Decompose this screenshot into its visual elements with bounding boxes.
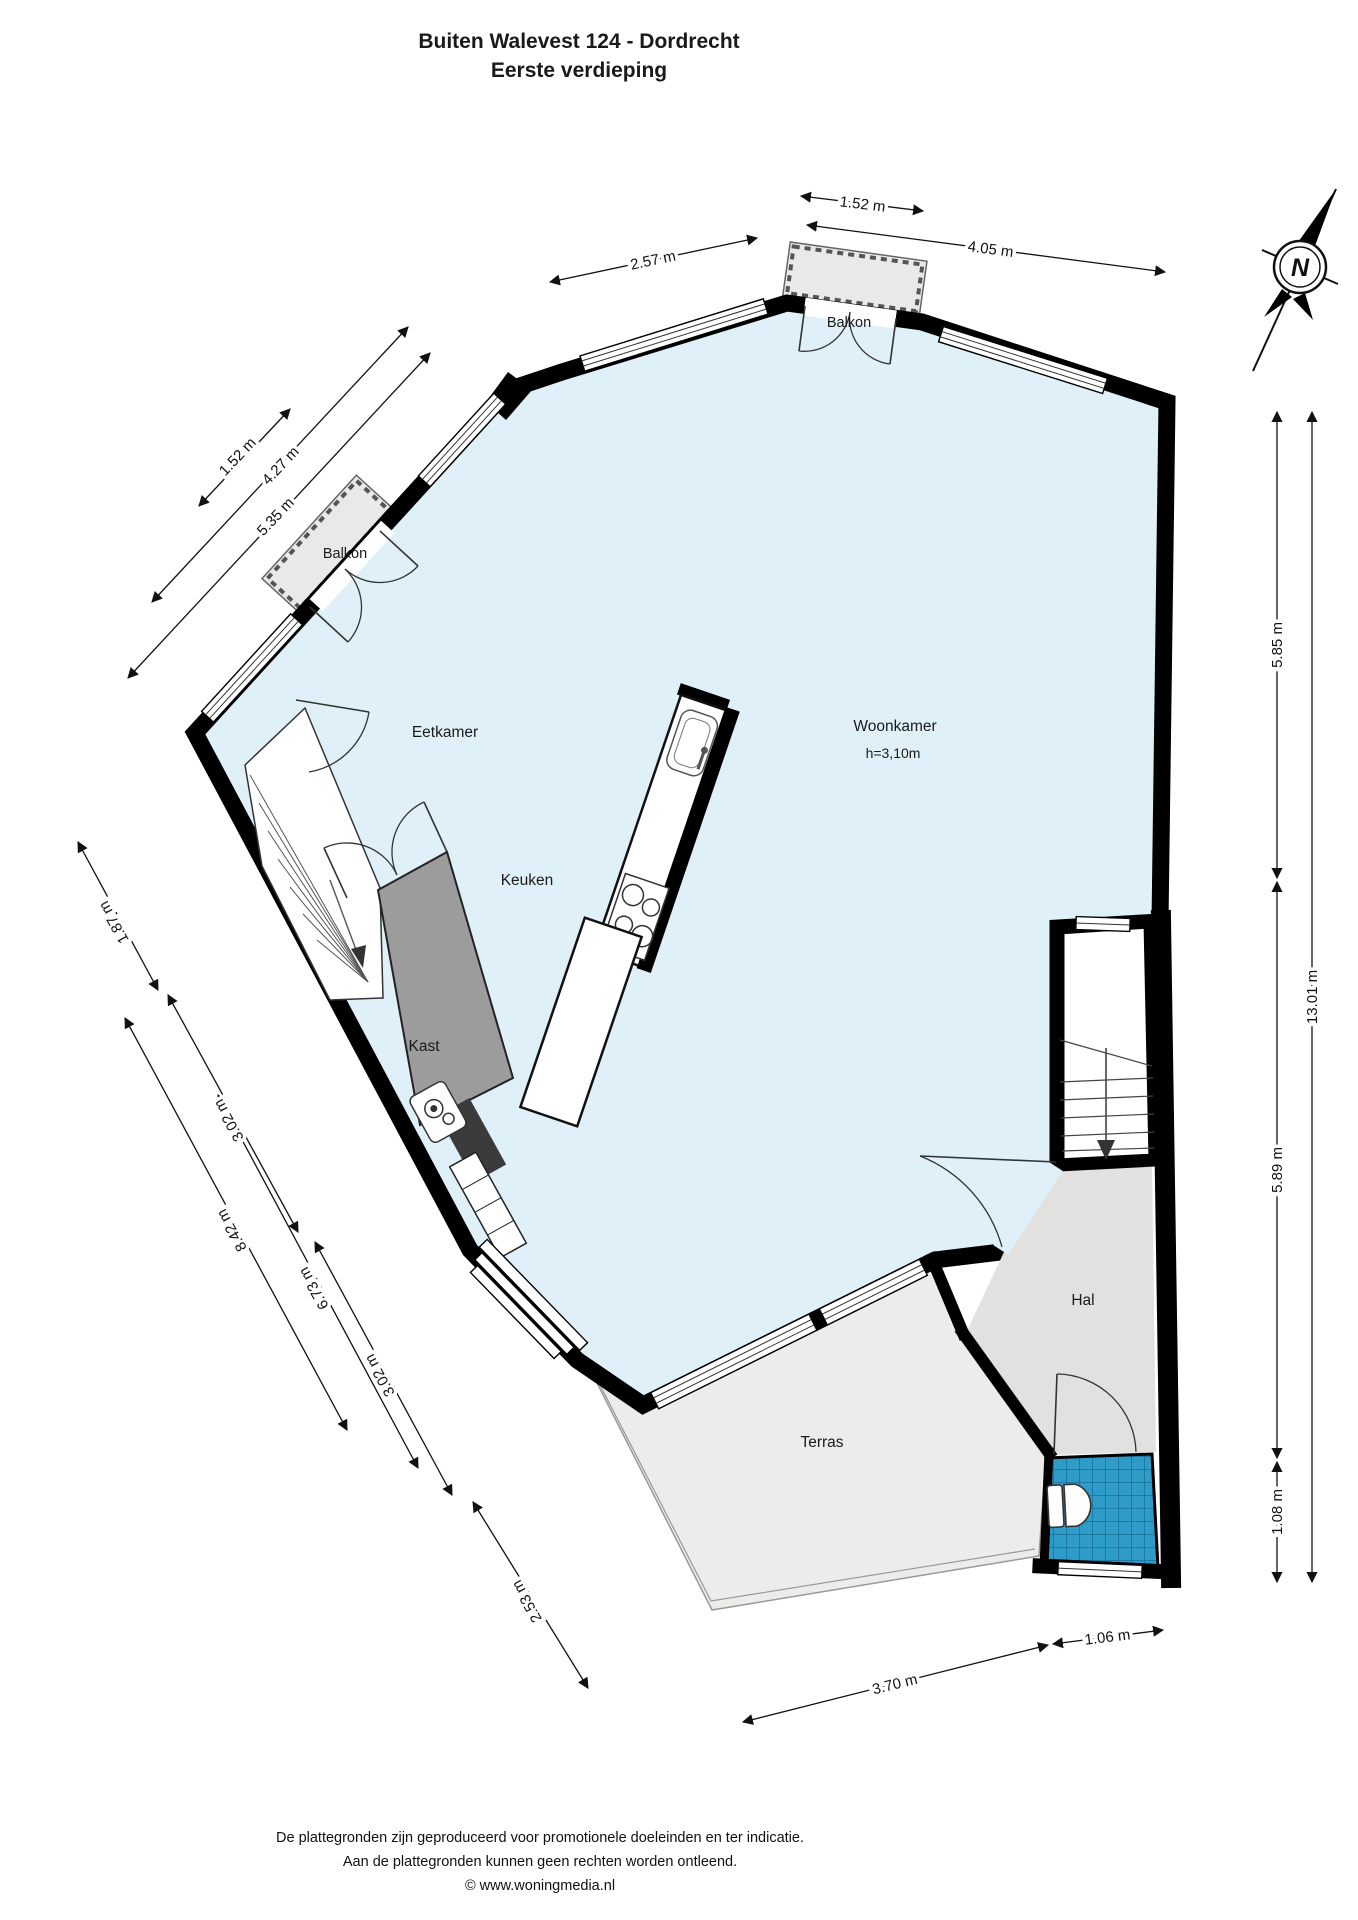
- dim-sw-302a: 3.02 m: [211, 1096, 248, 1144]
- window-toilet: [1058, 1562, 1142, 1579]
- dim-bottom-370: 3.70 m: [871, 1671, 920, 1699]
- label-keuken: Keuken: [501, 872, 554, 889]
- window-stairwell: [1076, 917, 1130, 932]
- dim-right-585: 5.85 m: [1269, 622, 1286, 668]
- floorplan-drawing: Buiten Walevest 124 - Dordrecht Eerste v…: [0, 0, 1358, 1920]
- dim-top-405: 4.05 m: [967, 238, 1015, 261]
- dim-left-535: 5.35 m: [254, 494, 298, 539]
- dim-sw-673: 6.73 m: [296, 1264, 333, 1312]
- label-hal: Hal: [1071, 1292, 1094, 1309]
- dim-sw-302b: 3.02 m: [362, 1351, 399, 1399]
- footer-disclaimer-1: De plattegronden zijn geproduceerd voor …: [276, 1830, 804, 1846]
- label-kast: Kast: [408, 1038, 440, 1055]
- page-title: Buiten Walevest 124 - Dordrecht: [418, 30, 739, 53]
- dim-left-152: 1.52 m: [216, 434, 260, 479]
- label-terras: Terras: [800, 1434, 843, 1451]
- label-eetkamer: Eetkamer: [412, 724, 478, 741]
- compass-north-letter: N: [1291, 254, 1310, 282]
- label-woonkamer: Woonkamer: [853, 718, 936, 735]
- label-balkon-left: Balkon: [323, 546, 367, 562]
- dim-right-1301: 13.01 m: [1304, 970, 1321, 1024]
- label-woonkamer-height: h=3,10m: [866, 745, 921, 761]
- floorplan-page: Buiten Walevest 124 - Dordrecht Eerste v…: [0, 0, 1358, 1920]
- label-balkon-top: Balkon: [827, 315, 871, 331]
- dim-top-257: 2.57 m: [629, 248, 677, 274]
- dim-right-108: 1.08 m: [1269, 1489, 1286, 1535]
- compass-rose-icon: N: [1253, 189, 1338, 371]
- dim-left-427: 4.27 m: [259, 443, 303, 488]
- dim-sw-842: 8.42 m: [214, 1206, 251, 1254]
- dim-bottom-106: 1.06 m: [1084, 1626, 1132, 1648]
- dim-right-589: 5.89 m: [1269, 1147, 1286, 1193]
- dim-sw-253: 2.53 m: [509, 1577, 546, 1625]
- page-subtitle: Eerste verdieping: [491, 59, 667, 82]
- dim-sw-187: 1.87 m: [96, 898, 133, 946]
- footer-copyright: © www.woningmedia.nl: [465, 1878, 615, 1894]
- toilet-icon: [1047, 1483, 1092, 1527]
- footer-disclaimer-2: Aan de plattegronden kunnen geen rechten…: [343, 1854, 737, 1870]
- dim-top-152: 1.52 m: [839, 193, 887, 215]
